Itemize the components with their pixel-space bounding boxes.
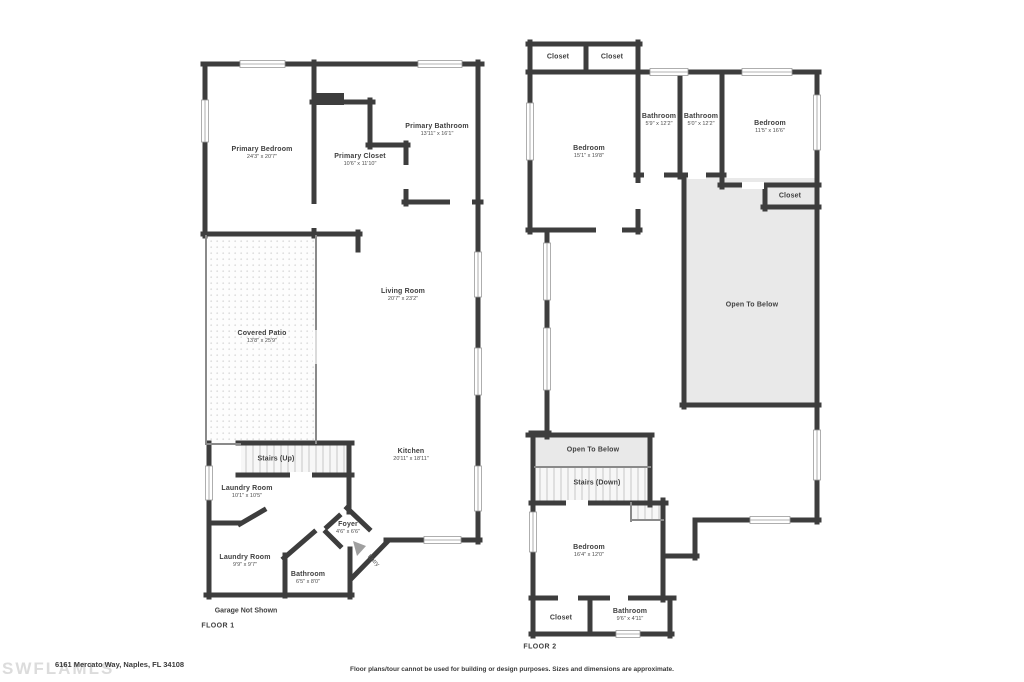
room-name: Kitchen <box>393 448 428 455</box>
window <box>424 537 461 544</box>
room-dims: 20'11" x 18'11" <box>393 456 428 462</box>
window <box>650 69 688 76</box>
room-dims: 10'6" x 11'10" <box>334 161 386 167</box>
room-name: Open To Below <box>726 302 778 309</box>
room-label-foyer: Foyer 4'6" x 6'6" <box>336 521 360 535</box>
room-label-stairs-up: Stairs (Up) <box>257 456 294 463</box>
room-name: Stairs (Down) <box>573 480 620 487</box>
room-label-living-room: Living Room 20'7" x 23'2" <box>381 288 425 302</box>
room-label-stairs-down: Stairs (Down) <box>573 480 620 487</box>
room-name: Stairs (Up) <box>257 456 294 463</box>
window <box>206 466 213 500</box>
room-dims: 24'3" x 20'7" <box>232 154 293 160</box>
window <box>475 348 482 395</box>
room-label-primary-closet: Primary Closet 10'6" x 11'10" <box>334 153 386 167</box>
room-label-closet-top-1: Closet <box>547 54 569 61</box>
room-dims: 9'9" x 9'7" <box>219 562 270 568</box>
room-name: Closet <box>779 193 801 200</box>
door-opening <box>610 595 628 602</box>
room-label-primary-bathroom: Primary Bathroom 13'11" x 16'1" <box>405 123 468 137</box>
door-opening <box>635 183 642 209</box>
window <box>544 243 551 300</box>
room-name: Primary Bedroom <box>232 146 293 153</box>
open-to-below-area <box>686 178 815 403</box>
room-dims: 4'6" x 6'6" <box>336 529 360 535</box>
room-name: Open To Below <box>567 447 619 454</box>
room-dims: 16'4" x 12'0" <box>573 552 605 558</box>
room-name: Foyer <box>336 521 360 528</box>
door-opening <box>558 595 578 602</box>
room-label-primary-bedroom: Primary Bedroom 24'3" x 20'7" <box>232 146 293 160</box>
room-label-closet-right: Closet <box>779 193 801 200</box>
room-dims: 10'1" x 10'5" <box>221 493 272 499</box>
room-label-bathroom-1: Bathroom 5'9" x 12'2" <box>642 113 676 127</box>
window <box>202 100 209 142</box>
window <box>527 103 534 160</box>
room-dims: 13'11" x 16'1" <box>405 131 468 137</box>
window <box>814 430 821 480</box>
room-dims: 5'0" x 12'2" <box>684 121 718 127</box>
door-opening <box>403 165 410 189</box>
room-name: Bathroom <box>642 113 676 120</box>
room-name: Closet <box>547 54 569 61</box>
window <box>418 61 462 68</box>
room-dims: 9'6" x 4'11" <box>613 616 647 622</box>
room-label-bedroom-3: Bedroom 16'4" x 12'0" <box>573 544 605 558</box>
room-label-open-to-below: Open To Below <box>726 302 778 309</box>
wall <box>284 532 314 558</box>
window <box>616 631 640 638</box>
window <box>750 517 790 524</box>
wall <box>316 93 344 105</box>
room-label-closet-bottom: Closet <box>550 615 572 622</box>
entry-arrow-icon <box>353 541 366 556</box>
door-opening <box>644 172 664 179</box>
room-label-closet-top-2: Closet <box>601 54 623 61</box>
room-label-laundry-room-2: Laundry Room 9'9" x 9'7" <box>219 554 270 568</box>
window <box>742 69 792 76</box>
window <box>544 328 551 390</box>
wall <box>240 510 264 524</box>
room-name: Primary Closet <box>334 153 386 160</box>
door-opening <box>450 199 472 206</box>
room-name: Bedroom <box>573 145 605 152</box>
room-name: Covered Patio <box>237 330 286 337</box>
room-label-bathroom-bottom: Bathroom 9'6" x 4'11" <box>613 608 647 622</box>
room-name: Primary Bathroom <box>405 123 468 130</box>
room-label-bedroom-1: Bedroom 15'1" x 19'8" <box>573 145 605 159</box>
room-dims: 11'5" x 16'6" <box>754 128 786 134</box>
room-dims: 13'8" x 25'9" <box>237 338 286 344</box>
room-name: Laundry Room <box>219 554 270 561</box>
floor1-door-openings <box>290 165 472 479</box>
room-dims: 15'1" x 19'8" <box>573 153 605 159</box>
room-name: Bathroom <box>613 608 647 615</box>
room-name: Bedroom <box>573 544 605 551</box>
room-dims: 5'9" x 12'2" <box>642 121 676 127</box>
room-dims: 20'7" x 23'2" <box>381 296 425 302</box>
room-label-laundry-room-1: Laundry Room 10'1" x 10'5" <box>221 485 272 499</box>
room-dims: 6'5" x 8'0" <box>291 579 325 585</box>
door-opening <box>742 182 764 189</box>
window <box>530 512 537 552</box>
floor1-title: FLOOR 1 <box>201 623 234 630</box>
garage-note: Garage Not Shown <box>215 608 278 615</box>
window <box>475 466 482 511</box>
understairs-area <box>632 504 662 519</box>
room-name: Closet <box>601 54 623 61</box>
floor2-title: FLOOR 2 <box>523 644 556 651</box>
door-opening <box>311 204 318 228</box>
room-name: Laundry Room <box>221 485 272 492</box>
room-name: Bedroom <box>754 120 786 127</box>
door-opening <box>596 227 622 234</box>
room-name: Bathroom <box>291 571 325 578</box>
window <box>814 95 821 150</box>
room-label-open-to-below-small: Open To Below <box>567 447 619 454</box>
floorplan-canvas <box>0 0 1024 682</box>
room-label-bathroom-f1: Bathroom 6'5" x 8'0" <box>291 571 325 585</box>
window <box>240 61 285 68</box>
disclaimer-text: Floor plans/tour cannot be used for buil… <box>0 666 1024 673</box>
room-label-bedroom-2: Bedroom 11'5" x 16'6" <box>754 120 786 134</box>
room-name: Living Room <box>381 288 425 295</box>
room-name: Bathroom <box>684 113 718 120</box>
room-label-bathroom-2: Bathroom 5'0" x 12'2" <box>684 113 718 127</box>
room-name: Closet <box>550 615 572 622</box>
window <box>475 252 482 297</box>
room-label-kitchen: Kitchen 20'11" x 18'11" <box>393 448 428 462</box>
floorplan-page: Primary Bedroom 24'3" x 20'7" Primary Cl… <box>0 0 1024 682</box>
door-opening <box>290 472 312 479</box>
floor1-plan <box>202 61 483 598</box>
door-opening <box>566 500 588 507</box>
door-opening <box>688 172 706 179</box>
room-label-covered-patio: Covered Patio 13'8" x 25'9" <box>237 330 286 344</box>
